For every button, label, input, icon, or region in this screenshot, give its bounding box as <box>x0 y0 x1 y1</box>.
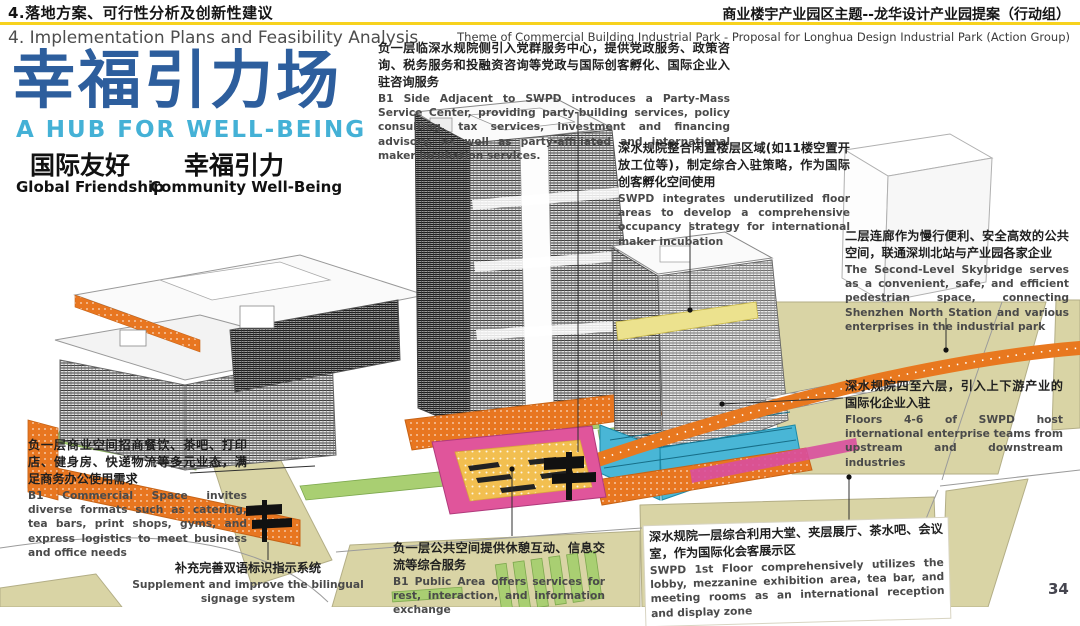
callout-en-text: B1 Public Area offers services for rest,… <box>393 575 605 617</box>
callout-en-text: The Second-Level Skybridge serves as a c… <box>845 263 1069 334</box>
slide-subject-zh: 商业楼宇产业园区主题--龙华设计产业园提案（行动组） <box>722 4 1070 24</box>
callout-zh-text: 深水规院整合闲置楼层区域(如11楼空置开放工位等)，制定综合入驻策略，作为国际创… <box>618 140 850 191</box>
callout-skybridge: 二层连廊作为慢行便利、安全高效的公共空间，联通深圳北站与产业园各家企业 The … <box>845 228 1069 334</box>
callout-en-text: SWPD 1st Floor comprehensively utilizes … <box>650 556 945 621</box>
callout-zh-text: 二层连廊作为慢行便利、安全高效的公共空间，联通深圳北站与产业园各家企业 <box>845 228 1069 262</box>
callout-en-text: B1 Commercial Space invites diverse form… <box>28 489 247 560</box>
slide-title-zh: 4.落地方案、可行性分析及创新性建议 <box>8 2 273 23</box>
pillar-2-zh: 幸福引力 <box>184 146 284 182</box>
callout-zh-text: 深水规院四至六层，引入上下游产业的国际化企业入驻 <box>845 378 1063 412</box>
b1-public-plaza <box>432 426 606 514</box>
header-yellow-rule <box>0 22 1080 25</box>
callout-zh-text: 负一层公共空间提供休憩互动、信息交流等综合服务 <box>393 540 605 574</box>
callout-en-text: Supplement and improve the bilingual sig… <box>112 578 384 606</box>
callout-first-floor: 深水规院一层综合利用大堂、夹层展厅、茶水吧、会议室，作为国际化会客展示区 SWP… <box>644 518 951 626</box>
callout-en-text: Floors 4-6 of SWPD host international en… <box>845 413 1063 470</box>
callout-b1-public: 负一层公共空间提供休憩互动、信息交流等综合服务 B1 Public Area o… <box>393 540 605 618</box>
callout-floors-4-6: 深水规院四至六层，引入上下游产业的国际化企业入驻 Floors 4-6 of S… <box>845 378 1063 470</box>
pillar-2-en: Community Well-Being <box>150 178 342 196</box>
hero-title-en: A HUB FOR WELL-BEING <box>16 117 366 143</box>
callout-zh-text: 负一层临深水规院侧引入党群服务中心，提供党政服务、政策咨询、税务服务和投融资咨询… <box>378 40 730 91</box>
page-number: 34 <box>1048 580 1069 598</box>
pillar-1-en: Global Friendship <box>16 178 164 196</box>
hero-title-zh: 幸福引力场 <box>12 48 342 114</box>
callout-floor-integration: 深水规院整合闲置楼层区域(如11楼空置开放工位等)，制定综合入驻策略，作为国际创… <box>618 140 850 249</box>
callout-zh-text: 补充完善双语标识指示系统 <box>112 560 384 577</box>
callout-zh-text: 负一层商业空间招商餐饮、茶吧、打印店、健身房、快递物流等多元业态，满足商务办公使… <box>28 437 247 488</box>
callout-b1-commercial: 负一层商业空间招商餐饮、茶吧、打印店、健身房、快递物流等多元业态，满足商务办公使… <box>28 437 247 560</box>
pillar-1-zh: 国际友好 <box>30 146 130 182</box>
callout-en-text: SWPD integrates underutilized floor area… <box>618 192 850 249</box>
callout-signage: 补充完善双语标识指示系统 Supplement and improve the … <box>112 560 384 606</box>
